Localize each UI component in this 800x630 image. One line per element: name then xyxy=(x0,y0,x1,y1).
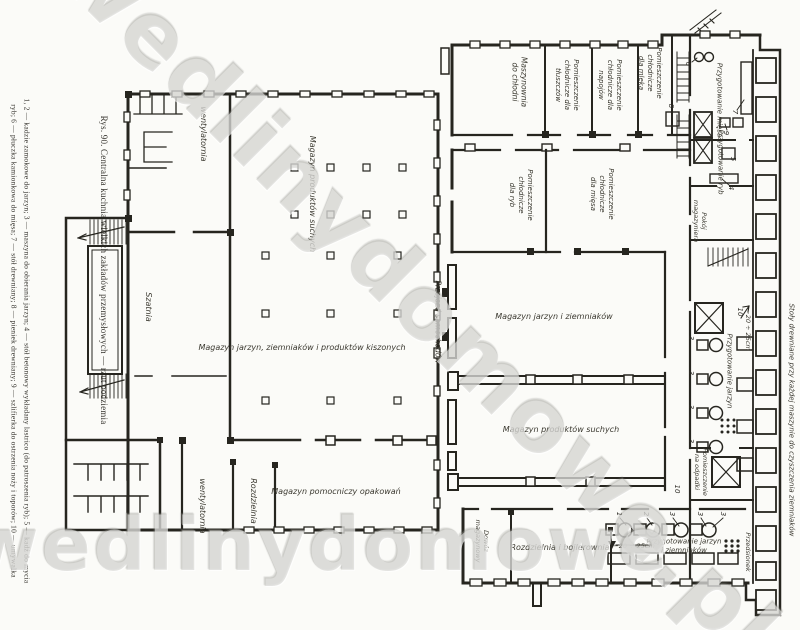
machine-number-mark: 3 xyxy=(687,405,695,409)
room-label: Pokój magazyniera xyxy=(692,200,708,242)
room-label: Pomieszczenie chłodnicze dla mięsa xyxy=(589,168,615,219)
room-label: Pomieszczenie chłodnicze dla napojów xyxy=(597,59,623,110)
machine-number-mark: 3 xyxy=(687,336,695,340)
machine-number-mark: 9 xyxy=(722,131,730,135)
scanned-floor-plan-page: wentylatorniaMagazyn produktów suchychSz… xyxy=(0,0,800,630)
room-label: Szatnia xyxy=(143,292,153,322)
room-label: Pomieszczenie chłodnicze dla mleka xyxy=(637,47,663,98)
room-label: Dowóz magazynowy xyxy=(474,520,490,563)
room-label: Magazyn produktów suchych xyxy=(307,136,317,252)
room-label: Maszynownia do chłodni xyxy=(510,57,529,107)
machine-number-mark: 1 xyxy=(615,512,623,516)
machine-number-mark: 3 xyxy=(719,512,727,516)
room-label: −20 ÷ 25cm xyxy=(744,309,752,350)
machine-number-mark: 3 xyxy=(668,512,676,516)
machine-number-mark: 7 xyxy=(731,110,739,114)
room-label: Pomieszczenie chłodnicze dla tłuszczów xyxy=(554,59,580,110)
room-label: Przygotowanie jarzyn xyxy=(725,334,734,409)
room-label: Magazyn pomocniczy opakowań xyxy=(271,487,400,497)
plan-labels: wentylatorniaMagazyn produktów suchychSz… xyxy=(0,0,800,630)
room-label: Magazyn jarzyn i ziemniaków xyxy=(495,312,612,322)
room-label: Pomieszczenie na odpadki xyxy=(693,448,709,496)
room-label: Magazyn produktów suchych xyxy=(503,425,619,435)
room-label: Przedsionek xyxy=(744,532,752,571)
machine-number-mark: 8 xyxy=(667,104,675,108)
machine-number-mark: 3 xyxy=(696,512,704,516)
room-label: Pomieszczenie chłodnicze dla ryb xyxy=(508,169,534,220)
room-label: Przygotowanie jarzyn i ziemniaków xyxy=(647,537,722,555)
machine-number-mark: 2 xyxy=(642,512,650,516)
room-label: Stoły drewniane przy każdej maszynie do … xyxy=(787,304,796,537)
room-label: Magazyn jarzyn, ziemniaków i produktów k… xyxy=(198,343,405,353)
room-label: Przejazd samochodów xyxy=(433,280,442,363)
machine-number-mark: 10 xyxy=(673,485,681,494)
machine-number-mark: 3 xyxy=(687,439,695,443)
machine-number-mark: 5 xyxy=(729,157,737,161)
machine-number-mark: 10 xyxy=(736,308,744,317)
room-label: Rozdzielnia xyxy=(248,478,258,524)
room-label: Przygotowanie mięsa xyxy=(715,63,724,138)
machine-number-mark: 6 xyxy=(684,62,692,66)
machine-number-mark: 3 xyxy=(687,371,695,375)
room-label: wentylatornia xyxy=(197,478,207,533)
room-label: Przygotowanie ryb xyxy=(716,129,725,194)
machine-number-mark: 4 xyxy=(727,186,735,190)
room-label: Rozdzielnia i bojlerownia xyxy=(510,543,609,553)
room-label: wentylatornia xyxy=(198,106,208,161)
